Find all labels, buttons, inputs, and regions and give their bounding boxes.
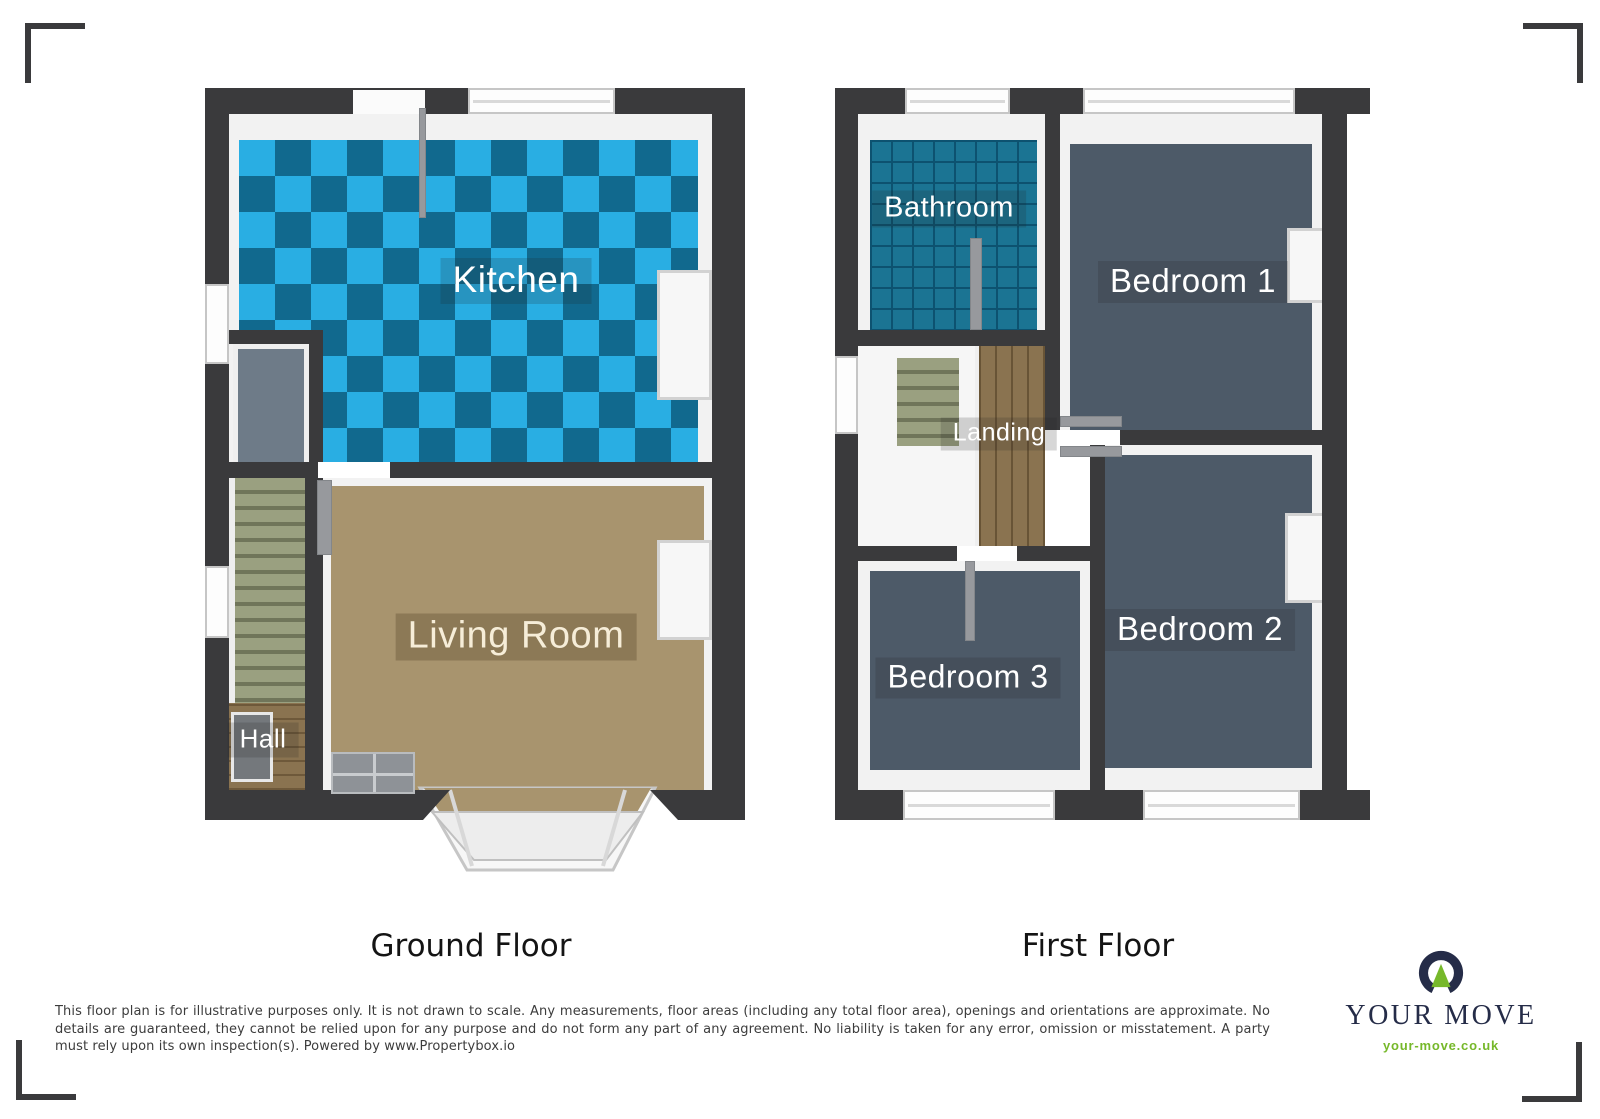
wall-segment [229,462,318,478]
room-label-kitchen: Kitchen [441,258,592,304]
kitchen-window [468,88,615,114]
bedroom-1-door-leaf [1060,416,1122,427]
ground-floor-plan: Kitchen Living Room Hall [205,88,745,820]
first-floor-caption: First Floor [888,928,1308,964]
living-room-door-open [331,752,415,794]
kitchen-door-leaf [317,480,332,555]
corner-mark-top-right [1523,23,1583,83]
landing-window [835,356,858,434]
living-room-chimney-recess [657,540,712,640]
wall-segment [205,88,229,820]
your-move-logo: YOUR MOVE your-move.co.uk [1340,948,1542,1053]
kitchen-side-window [205,284,229,364]
store-cupboard-floor [233,344,309,462]
back-door-opening [353,90,425,114]
back-door-leaf [419,108,426,218]
floorplan-page: Kitchen Living Room Hall [0,0,1600,1119]
room-label-landing: Landing [941,418,1057,451]
room-label-bedroom-3: Bedroom 3 [875,658,1060,699]
kitchen-chimney-recess [657,270,712,400]
wall-segment [205,790,450,820]
first-floor-plan: Bathroom Bedroom 1 Bedroom 2 Bedroom 3 L… [835,88,1370,820]
bedroom-1-chimney-recess [1287,228,1322,303]
wall-segment [1322,88,1347,820]
room-label-bedroom-2: Bedroom 2 [1105,609,1295,651]
your-move-logo-text: YOUR MOVE [1340,1000,1542,1032]
bathroom-window [905,88,1010,114]
wall-segment [1017,546,1105,561]
wall-segment [858,330,1060,346]
wall-segment [390,462,712,478]
bedroom-2-window [1143,790,1300,820]
room-label-bathroom: Bathroom [872,191,1026,228]
bedroom-1-window [1083,88,1295,114]
wall-segment [1090,445,1105,790]
wall-segment [309,330,323,462]
bedroom-2-door-leaf [1060,446,1122,457]
bedroom-3-window [903,790,1055,820]
disclaimer-text: This floor plan is for illustrative purp… [55,1003,1270,1056]
bedroom-3-door-leaf [965,561,975,641]
ground-floor-caption: Ground Floor [261,928,681,964]
room-label-living-room: Living Room [396,614,637,661]
hall-side-window [205,566,229,638]
wall-segment [1120,430,1322,445]
bedroom-2-chimney-recess [1285,513,1322,603]
bathroom-door-leaf [970,238,982,330]
wall-segment [858,546,957,561]
wall-segment [835,88,858,820]
room-label-bedroom-1: Bedroom 1 [1098,261,1288,303]
wall-segment [1045,114,1060,430]
hall-staircase [229,478,305,703]
wall-segment [712,88,745,820]
your-move-url: your-move.co.uk [1340,1038,1542,1053]
your-move-logo-icon [1415,948,1467,998]
room-label-hall: Hall [228,723,299,758]
corner-mark-top-left [25,23,85,83]
